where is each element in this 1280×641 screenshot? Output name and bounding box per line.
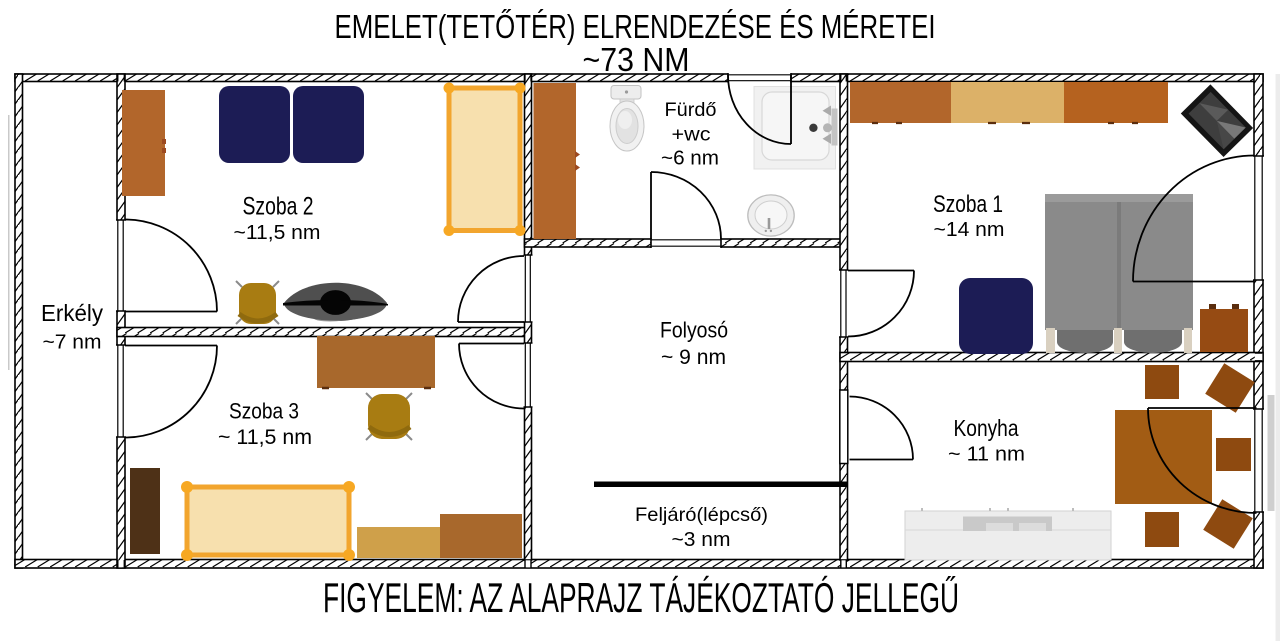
svg-text:~7 nm: ~7 nm bbox=[43, 332, 102, 354]
svg-text:FIGYELEM: AZ ALAPRAJZ TÁJÉKOZT: FIGYELEM: AZ ALAPRAJZ TÁJÉKOZTATÓ JELLEG… bbox=[323, 574, 959, 621]
svg-text:Erkély: Erkély bbox=[41, 300, 103, 326]
svg-text:~11,5 nm: ~11,5 nm bbox=[234, 221, 321, 244]
svg-text:~3 nm: ~3 nm bbox=[672, 529, 731, 551]
svg-text:EMELET(TETŐTÉR) ELRENDEZÉSE ÉS: EMELET(TETŐTÉR) ELRENDEZÉSE ÉS MÉRETEI bbox=[335, 8, 936, 45]
svg-text:Folyosó: Folyosó bbox=[660, 318, 728, 343]
svg-text:~73 NM: ~73 NM bbox=[583, 41, 690, 78]
svg-text:~6 nm: ~6 nm bbox=[661, 148, 719, 170]
svg-text:Feljáró(lépcső): Feljáró(lépcső) bbox=[635, 504, 768, 526]
svg-text:Konyha: Konyha bbox=[954, 415, 1020, 441]
svg-text:Szoba 1: Szoba 1 bbox=[933, 191, 1003, 218]
svg-text:Szoba 2: Szoba 2 bbox=[243, 193, 314, 221]
svg-text:Fürdő: Fürdő bbox=[665, 99, 717, 121]
svg-text:+wc: +wc bbox=[672, 124, 711, 146]
svg-text:~ 11,5 nm: ~ 11,5 nm bbox=[218, 426, 312, 449]
svg-text:Szoba 3: Szoba 3 bbox=[229, 399, 299, 424]
svg-text:~14 nm: ~14 nm bbox=[934, 219, 1005, 241]
svg-text:~ 11 nm: ~ 11 nm bbox=[948, 443, 1025, 466]
svg-text:~ 9 nm: ~ 9 nm bbox=[661, 346, 726, 369]
